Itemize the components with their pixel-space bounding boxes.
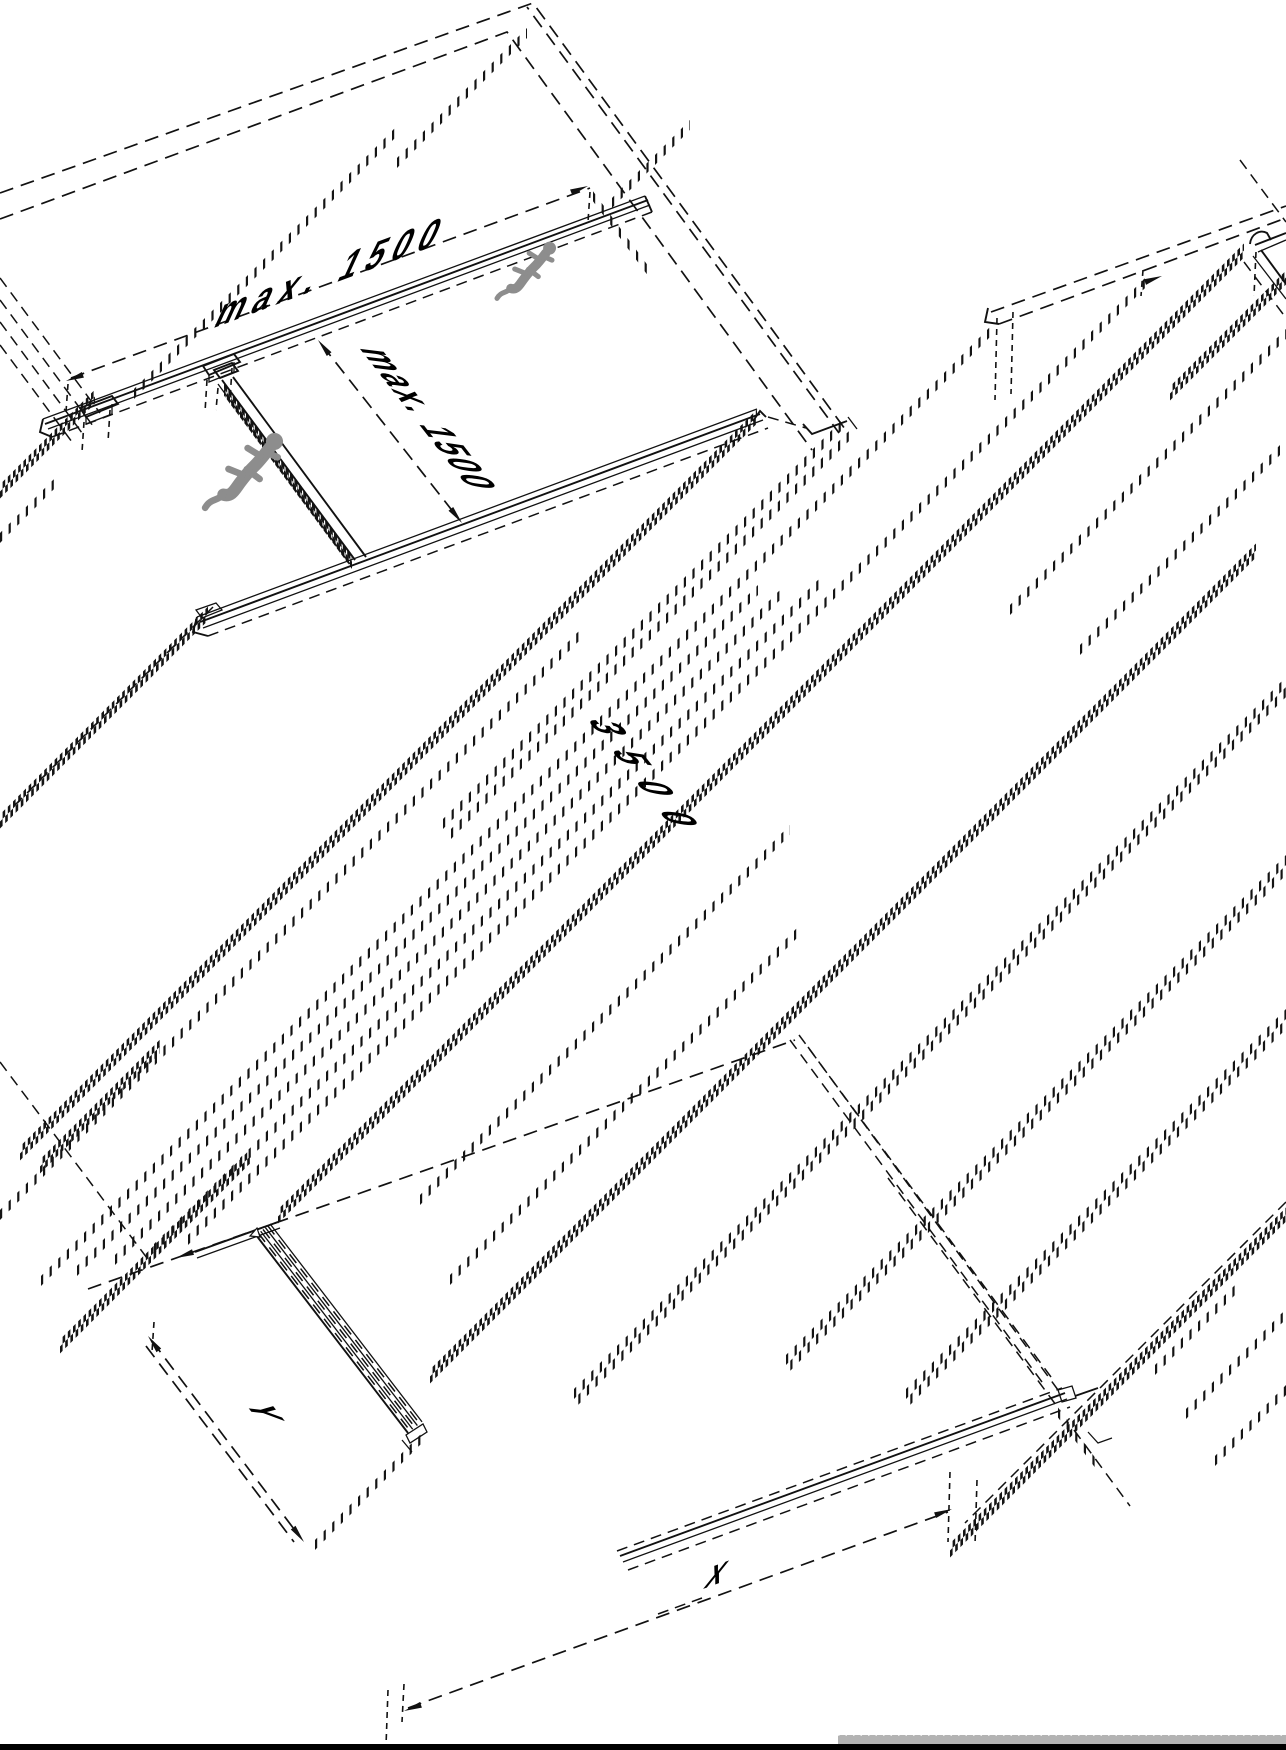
svg-text:X: X — [699, 1553, 733, 1597]
svg-text:max. 1500: max. 1500 — [348, 346, 508, 494]
svg-text:3500: 3500 — [576, 717, 723, 844]
svg-text:Y: Y — [235, 1401, 294, 1423]
